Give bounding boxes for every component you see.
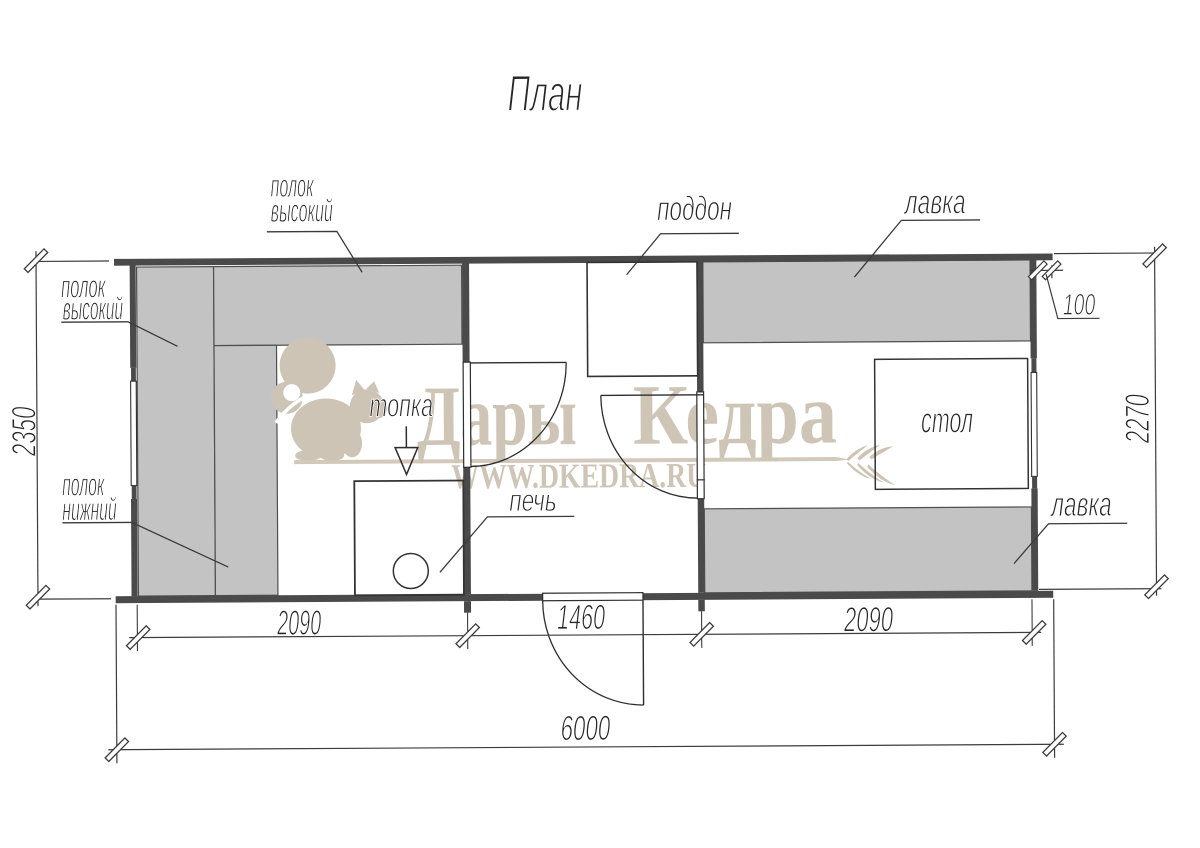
svg-text:нижний: нижний <box>62 491 117 527</box>
svg-text:лавка: лавка <box>903 183 966 221</box>
svg-text:100: 100 <box>1063 289 1096 322</box>
svg-text:План: План <box>507 65 582 122</box>
svg-text:стол: стол <box>921 399 973 440</box>
svg-text:2270: 2270 <box>1119 394 1157 444</box>
svg-text:лавка: лавка <box>1050 486 1112 524</box>
svg-text:высокий: высокий <box>271 192 333 228</box>
svg-text:2090: 2090 <box>843 600 893 639</box>
svg-text:1460: 1460 <box>557 598 606 637</box>
svg-text:6000: 6000 <box>560 709 610 748</box>
svg-text:2350: 2350 <box>5 406 43 456</box>
svg-text:Кедра: Кедра <box>633 366 838 463</box>
svg-text:поддон: поддон <box>657 190 732 228</box>
svg-text:WWW.DKEDRA.RU: WWW.DKEDRA.RU <box>451 456 706 496</box>
svg-text:2090: 2090 <box>277 604 322 643</box>
svg-text:высокий: высокий <box>63 290 124 326</box>
svg-text:топка: топка <box>369 386 433 423</box>
svg-text:печь: печь <box>509 483 557 518</box>
